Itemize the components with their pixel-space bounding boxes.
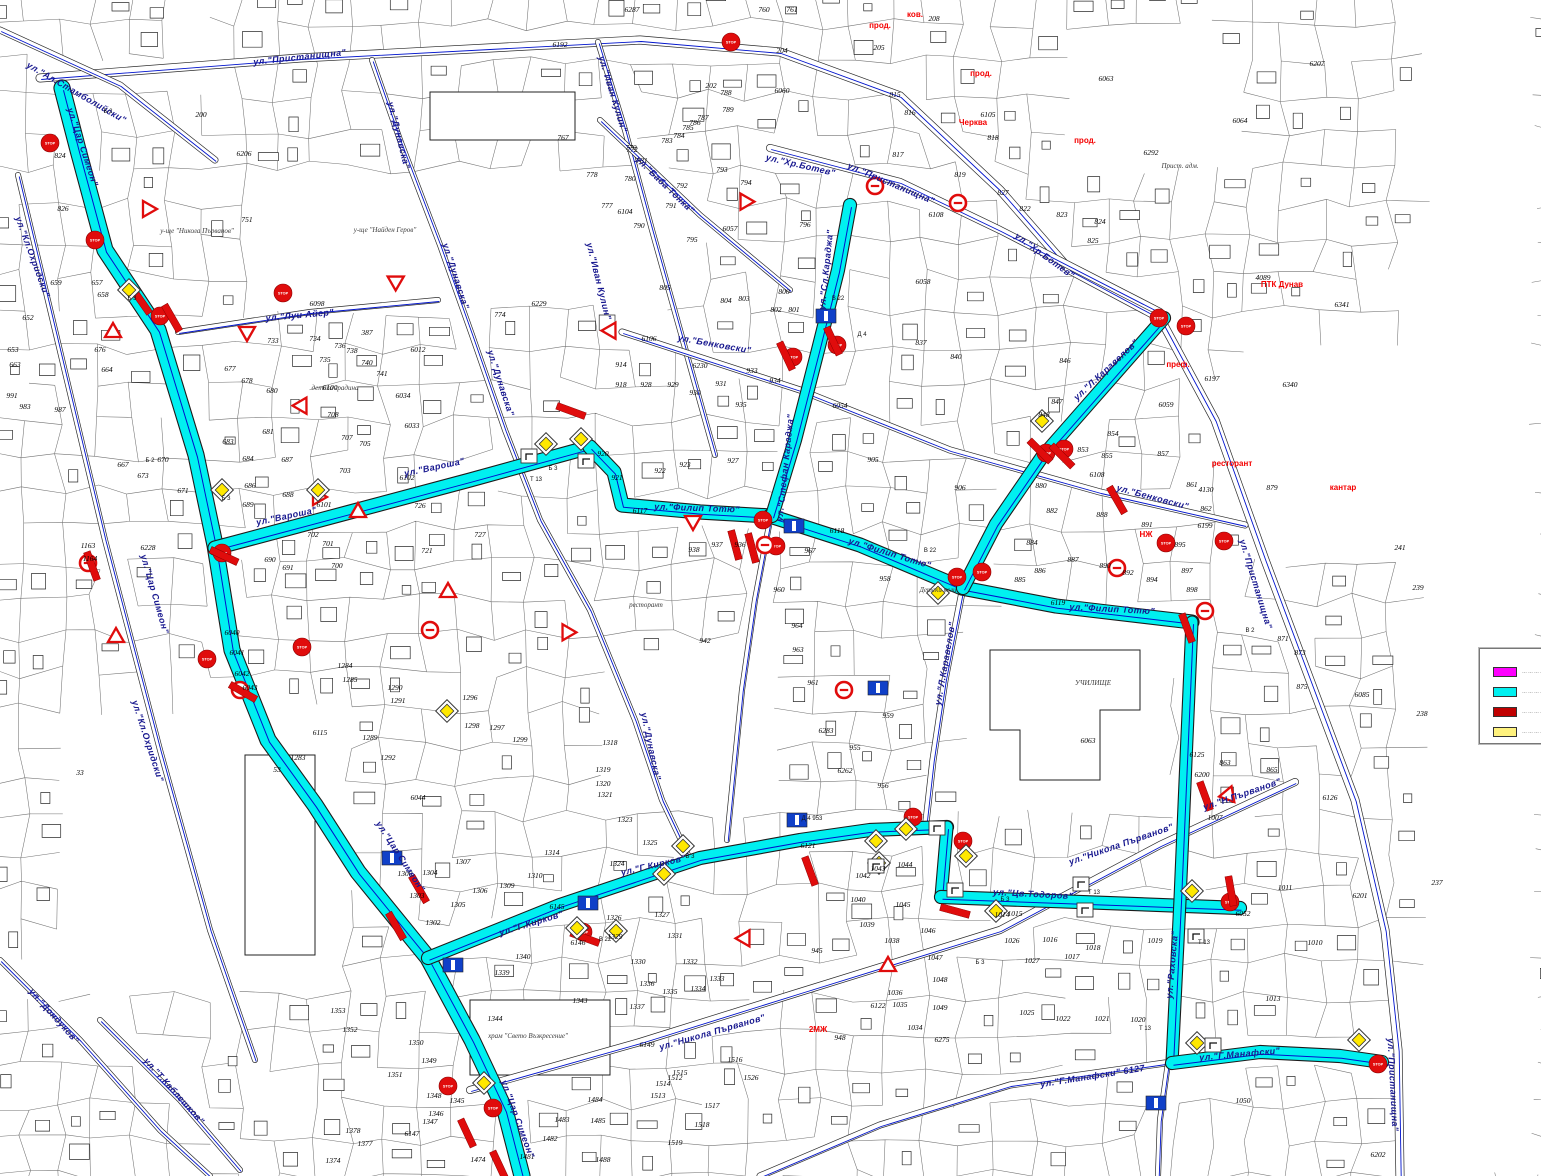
parcel-number: 205 [873,43,885,52]
kindergarten-building [430,92,575,140]
poi-label-red: прод. [1074,136,1096,145]
parcel-number: 667 [117,460,129,469]
parcel-number: 1334 [691,984,706,993]
parcel-number: 736 [334,341,346,350]
no-entry-sign [422,622,438,638]
parcel-number: 784 [673,131,685,140]
parcel-number: 657 [91,278,103,287]
sign-code-label: В 22 [599,937,612,943]
poi-label-red: НЖ [1139,530,1153,539]
parcel-number: 815 [889,90,901,99]
parcel-number: 914 [615,360,627,369]
parcel-number: 930 [689,388,701,397]
parcel-number: 791 [665,201,676,210]
parcel-number: 1283 [291,753,306,762]
parcel-number: 733 [267,336,279,345]
parcel-number: 794 [740,178,752,187]
parcel-number: 676 [94,345,106,354]
parcel-number: 1309 [500,881,515,890]
parcel-number: 1345 [450,1096,465,1105]
svg-text:STOP: STOP [297,646,308,650]
parcel-number: 1474 [471,1155,486,1164]
one-way-sign [1146,1096,1166,1110]
parcel-number: 837 [915,338,927,347]
parcel-number: 6287 [625,5,640,14]
legend-item-legend-cyan: ………… [1493,682,1541,702]
parcel-number: 6122 [871,1001,886,1010]
parcel-number: 663 [9,360,21,369]
parcel-number: 1353 [331,1006,346,1015]
svg-text:STOP: STOP [45,142,56,146]
parcel-number: 1289 [363,733,378,742]
parcel-number: 691 [282,563,293,572]
parcel-number: 861 [1186,480,1197,489]
parcel-number: 677 [224,364,236,373]
parcel-number: 1020 [1131,1015,1146,1024]
parcel-number: 1518 [695,1120,710,1129]
parcel-number: 1036 [888,988,903,997]
parcel-number: 788 [720,88,732,97]
one-way-sign [868,681,888,695]
parcel-number: 892 [1122,568,1134,577]
parcel-number: 1318 [603,738,618,747]
parcel-number: 967 [804,546,816,555]
parcel-number: 6058 [916,277,931,286]
parcel-number: 681 [262,427,273,436]
parcel-number: 1019 [1148,936,1163,945]
svg-text:STOP: STOP [488,1107,499,1111]
parcel-number: 1035 [893,1000,908,1009]
parcel-number: 1332 [683,957,698,966]
parcel-number: 6052 [1236,909,1251,918]
poi-label: Прист. адм. [1160,162,1198,170]
parcel-number: 897 [1181,566,1193,575]
parcel-number: 6044 [411,793,426,802]
parcel-number: 1017 [1065,952,1080,961]
poi-label-red: ков. [907,10,923,19]
parcel-number: 659 [50,278,62,287]
parcel-number: 1291 [391,696,406,705]
parcel-number: 802 [770,305,782,314]
stop-sign: STOP [293,638,311,656]
parcel-number: 774 [494,310,506,319]
parcel-number: 1297 [490,723,505,732]
parcel-number: 819 [954,170,966,179]
parcel-number: 959 [882,711,894,720]
poi-label-red: ПТК Дунав [1261,280,1303,289]
parcel-number: 1013 [1266,994,1281,1003]
parcel-number: 6201 [1353,891,1368,900]
crossing-type-sign [1073,877,1089,891]
parcel-number: 202 [705,81,717,90]
svg-text:STOP: STOP [952,576,963,580]
parcel-number: 848 [1038,410,1050,419]
legend-item-legend-magenta: ………… [1493,662,1541,682]
parcel-number: 895 [1174,540,1186,549]
svg-text:STOP: STOP [90,239,101,243]
parcel-number: 53 [273,765,281,774]
svg-text:STOP: STOP [1154,317,1165,321]
legend-yellow-label: ………… [1522,729,1541,735]
sign-code-label: Б 2 [104,109,114,115]
parcel-number: 854 [1107,429,1119,438]
poi-label-red: Черква [959,118,988,127]
parcel-number: 879 [1266,483,1278,492]
sign-code-label: В 22 [924,548,937,554]
parcel-number: 890 [1099,561,1111,570]
stop-sign: STOP [1150,309,1168,327]
one-way-sign [784,519,804,533]
svg-text:STOP: STOP [977,571,988,575]
parcel-number: 6012 [411,345,426,354]
stop-sign: STOP [198,650,216,668]
parcel-number: 6275 [935,1035,950,1044]
parcel-number: 708 [327,410,339,419]
parcel-number: 237 [1431,878,1443,887]
parcel-number: 6197 [1205,374,1220,383]
sign-code-label: Т 13 [1139,1026,1152,1032]
poi-label-red: преф. [1166,360,1189,369]
parcel-number: 779 [625,143,637,152]
parcel-number: 1303 [410,891,425,900]
parcel-number: 1344 [488,1014,503,1023]
parcel-number: 1304 [423,868,438,877]
parcel-number: 885 [1014,575,1026,584]
parcel-number: 6121 [801,841,816,850]
sign-code-label: Б 2 [146,458,156,464]
parcel-number: 789 [722,105,734,114]
legend-magenta-label: ………… [1522,669,1541,675]
legend-red-label: ………… [1522,709,1541,715]
parcel-number: 6042 [235,669,250,678]
parcel-number: 6228 [141,543,156,552]
parcel-number: 1333 [710,974,725,983]
parcel-number: 1306 [473,886,488,895]
parcel-number: 690 [264,555,276,564]
parcel-number: 777 [601,201,613,210]
parcel-number: 1011 [1278,883,1292,892]
parcel-number: 1043 [871,864,886,873]
parcel-number: 1517 [705,1101,720,1110]
parcel-number: 1377 [358,1139,373,1148]
parcel-number: 6034 [396,391,411,400]
svg-text:STOP: STOP [202,658,213,662]
parcel-number: 680 [266,386,278,395]
parcel-number: 1305 [451,900,466,909]
parcel-number: 801 [788,305,799,314]
poi-label-red: ресторант [1212,459,1253,468]
parcel-number: 6115 [313,728,328,737]
parcel-number: 905 [867,455,879,464]
parcel-number: 1488 [596,1155,611,1164]
parcel-number: 6040 [225,628,240,637]
parcel-number: 1319 [596,765,611,774]
parcel-number: 1050 [1236,1096,1251,1105]
parcel-number: 1025 [1020,1008,1035,1017]
stop-sign: STOP [274,284,292,302]
sign-code-label: Д 4 953 [802,816,823,822]
parcel-number: 738 [346,346,358,355]
parcel-number: 1378 [346,1126,361,1135]
parcel-number: 1335 [663,987,678,996]
no-entry-sign [836,682,852,698]
parcel-number: 823 [1056,210,1068,219]
parcel-number: 875 [1296,682,1308,691]
parcel-number: 800 [778,287,790,296]
parcel-number: 1034 [908,1023,923,1032]
parcel-number: 1314 [545,848,560,857]
parcel-number: 721 [421,546,432,555]
parcel-number: 6149 [640,1040,655,1049]
sign-code-label: Б 3 [222,496,232,502]
sign-code-label: Б 3 [549,466,559,472]
parcel-number: 778 [586,170,598,179]
parcel-number: 1339 [495,968,510,977]
stop-sign: STOP [722,33,740,51]
parcel-number: 6206 [237,149,252,158]
poi-label: у-ще "Найден Геров" [353,226,417,234]
sign-code-label: Б 3 [1001,897,1011,903]
parcel-number: 6108 [929,210,944,219]
parcel-number: 6041 [230,648,245,657]
parcel-number: 1049 [933,1003,948,1012]
parcel-number: 6199 [1198,521,1213,530]
sign-code-label: Т 13 [1198,940,1211,946]
parcel-number: 6108 [1090,470,1105,479]
parcel-number: 6063 [1081,736,1096,745]
parcel-number: 6101 [317,500,332,509]
poi-label: Детски ясли [918,586,957,594]
legend-title: · · [1493,654,1541,662]
parcel-number: 923 [679,460,691,469]
parcel-number: 387 [360,328,373,337]
parcel-number: 1515 [673,1068,688,1077]
parcel-number: 1336 [640,979,655,988]
parcel-number: 1026 [1005,936,1020,945]
parcel-number: 955 [849,743,861,752]
no-entry-sign [950,195,966,211]
parcel-number: 705 [359,439,371,448]
parcel-number: 880 [1035,481,1047,490]
parcel-number: 1038 [885,936,900,945]
parcel-number: 6200 [1195,770,1210,779]
parcel-number: 707 [341,433,353,442]
parcel-number: 686 [244,481,256,490]
crossing-type-sign [947,883,963,897]
parcel-number: 1027 [1025,956,1040,965]
parcel-number: 1164 [83,554,98,563]
parcel-number: 6207 [1310,59,1325,68]
parcel-number: 6262 [838,766,853,775]
parcel-number: 1296 [463,693,478,702]
parcel-number: 1343 [573,996,588,1005]
parcel-number: 1526 [744,1073,759,1082]
svg-text:STOP: STOP [1161,542,1172,546]
stop-sign: STOP [86,231,104,249]
parcel-number: 1044 [898,860,913,869]
legend-cyan-swatch [1493,687,1517,697]
parcel-number: 6117 [633,506,648,515]
svg-text:STOP: STOP [155,315,166,319]
parcel-number: 1310 [528,871,543,880]
parcel-number: 760 [758,5,770,14]
parcel-number: 1348 [427,1091,442,1100]
parcel-number: 689 [242,500,254,509]
stop-sign: STOP [484,1099,502,1117]
parcel-number: 1284 [338,661,353,670]
parcel-number: 938 [688,545,700,554]
parcel-number: 1485 [591,1116,606,1125]
poi-label: ресторант [628,601,663,609]
parcel-number: 6060 [775,86,790,95]
parcel-number: 1320 [596,779,611,788]
parcel-number: 987 [54,405,66,414]
parcel-number: 929 [667,380,679,389]
parcel-number: 1048 [933,975,948,984]
parcel-number: 1163 [81,541,96,550]
parcel-number: 1039 [860,920,875,929]
svg-text:STOP: STOP [1219,540,1230,544]
parcel-number: 1290 [388,683,403,692]
parcel-number: 928 [640,380,652,389]
parcel-number: 827 [997,188,1009,197]
parcel-number: 1325 [643,838,658,847]
parcel-number: 840 [950,352,962,361]
parcel-number: 658 [97,290,109,299]
svg-text:STOP: STOP [958,840,969,844]
parcel-number: 1010 [1308,938,1323,947]
stop-sign: STOP [439,1077,457,1095]
parcel-number: 894 [1146,575,1158,584]
parcel-number: 702 [307,530,319,539]
stop-sign: STOP [1157,534,1175,552]
parcel-number: 796 [799,220,811,229]
parcel-number: 805 [659,283,671,292]
parcel-number: 1047 [928,953,943,962]
parcel-number: 847 [1051,397,1063,406]
parcel-number: 239 [1412,583,1424,592]
poi-label-red: прод. [970,69,992,78]
parcel-number: 6202 [1371,1150,1386,1159]
parcel-number: 6118 [830,526,845,535]
parcel-number: 933 [746,366,758,375]
parcel-number: 818 [987,133,999,142]
parcel-number: 942 [699,636,711,645]
parcel-number: 6229 [532,299,547,308]
parcel-number: 6146 [571,938,586,947]
parcel-number: 33 [75,768,84,777]
poi-label: детска градина [312,384,359,392]
parcel-number: 873 [1294,648,1306,657]
stop-sign: STOP [1369,1055,1387,1073]
parcel-number: 1327 [655,910,670,919]
parcel-number: 1352 [343,1025,358,1034]
svg-text:STOP: STOP [1373,1063,1384,1067]
svg-text:STOP: STOP [278,292,289,296]
parcel-number: 241 [1394,543,1405,552]
parcel-number: 918 [615,380,627,389]
parcel-number: 1350 [409,1038,424,1047]
parcel-number: 1302 [426,918,441,927]
parcel-number: 1330 [631,957,646,966]
parcel-number: 963 [792,645,804,654]
parcel-number: 792 [676,181,688,190]
stop-sign: STOP [41,134,59,152]
parcel-number: 825 [1087,236,1099,245]
parcel-number: 1331 [668,931,683,940]
parcel-number: 670 [157,455,169,464]
parcel-number: 6054 [833,401,848,410]
parcel-number: 891 [1141,520,1152,529]
parcel-number: 945 [811,946,823,955]
parcel-number: 1042 [856,871,871,880]
parcel-number: 238 [1416,709,1428,718]
crossing-type-sign [1077,903,1093,917]
parcel-number: 767 [557,133,569,142]
poi-label-red: прод. [869,21,891,30]
parcel-number: 1015 [1008,909,1023,918]
legend-cyan-label: ………… [1522,689,1541,695]
parcel-number: 886 [1034,566,1046,575]
parcel-number: 964 [791,621,803,630]
parcel-number: 727 [474,530,486,539]
parcel-number: 671 [177,486,188,495]
parcel-number: 1007 [1208,813,1223,822]
parcel-number: 673 [137,471,149,480]
no-entry-sign [757,537,773,553]
parcel-number: 6064 [1233,116,1248,125]
parcel-number: 1021 [1095,1014,1110,1023]
parcel-number: 871 [1277,634,1288,643]
parcel-number: 1046 [921,926,936,935]
parcel-number: 1307 [456,857,471,866]
parcel-number: 920 [597,449,609,458]
one-way-sign [443,958,463,972]
parcel-number: 936 [734,540,746,549]
parcel-number: 652 [22,313,34,322]
parcel-number: 664 [101,365,113,374]
parcel-number: 855 [1101,451,1113,460]
parcel-number: 6126 [1323,793,1338,802]
map-legend: · · ………………………………………… [1479,648,1541,744]
legend-item-legend-yellow: ………… [1493,722,1541,742]
stop-sign: STOP [1215,532,1233,550]
parcel-number: 991 [6,391,17,400]
parcel-number: 200 [195,110,207,119]
parcel-number: 793 [716,165,728,174]
legend-magenta-swatch [1493,667,1517,677]
sign-code-label: Д 4 [857,332,867,338]
parcel-number: 6106 [642,334,657,343]
stop-sign: STOP [973,563,991,581]
parcel-number: 6085 [1355,690,1370,699]
parcel-number: 1016 [1043,935,1058,944]
parcel-number: 1292 [381,753,396,762]
svg-text:STOP: STOP [908,816,919,820]
parcel-number: 888 [1096,510,1108,519]
parcel-number: 1347 [423,1117,438,1126]
parcel-number: 1483 [555,1115,570,1124]
parcel-number: 726 [414,501,426,510]
parcel-number: 884 [1026,538,1038,547]
parcel-number: 1323 [618,815,633,824]
parcel-number: 653 [7,345,19,354]
parcel-number: 1326 [607,913,622,922]
legend-red-swatch [1493,707,1517,717]
legend-item-legend-red: ………… [1493,702,1541,722]
svg-text:STOP: STOP [1181,325,1192,329]
parcel-number: 6340 [1283,380,1298,389]
